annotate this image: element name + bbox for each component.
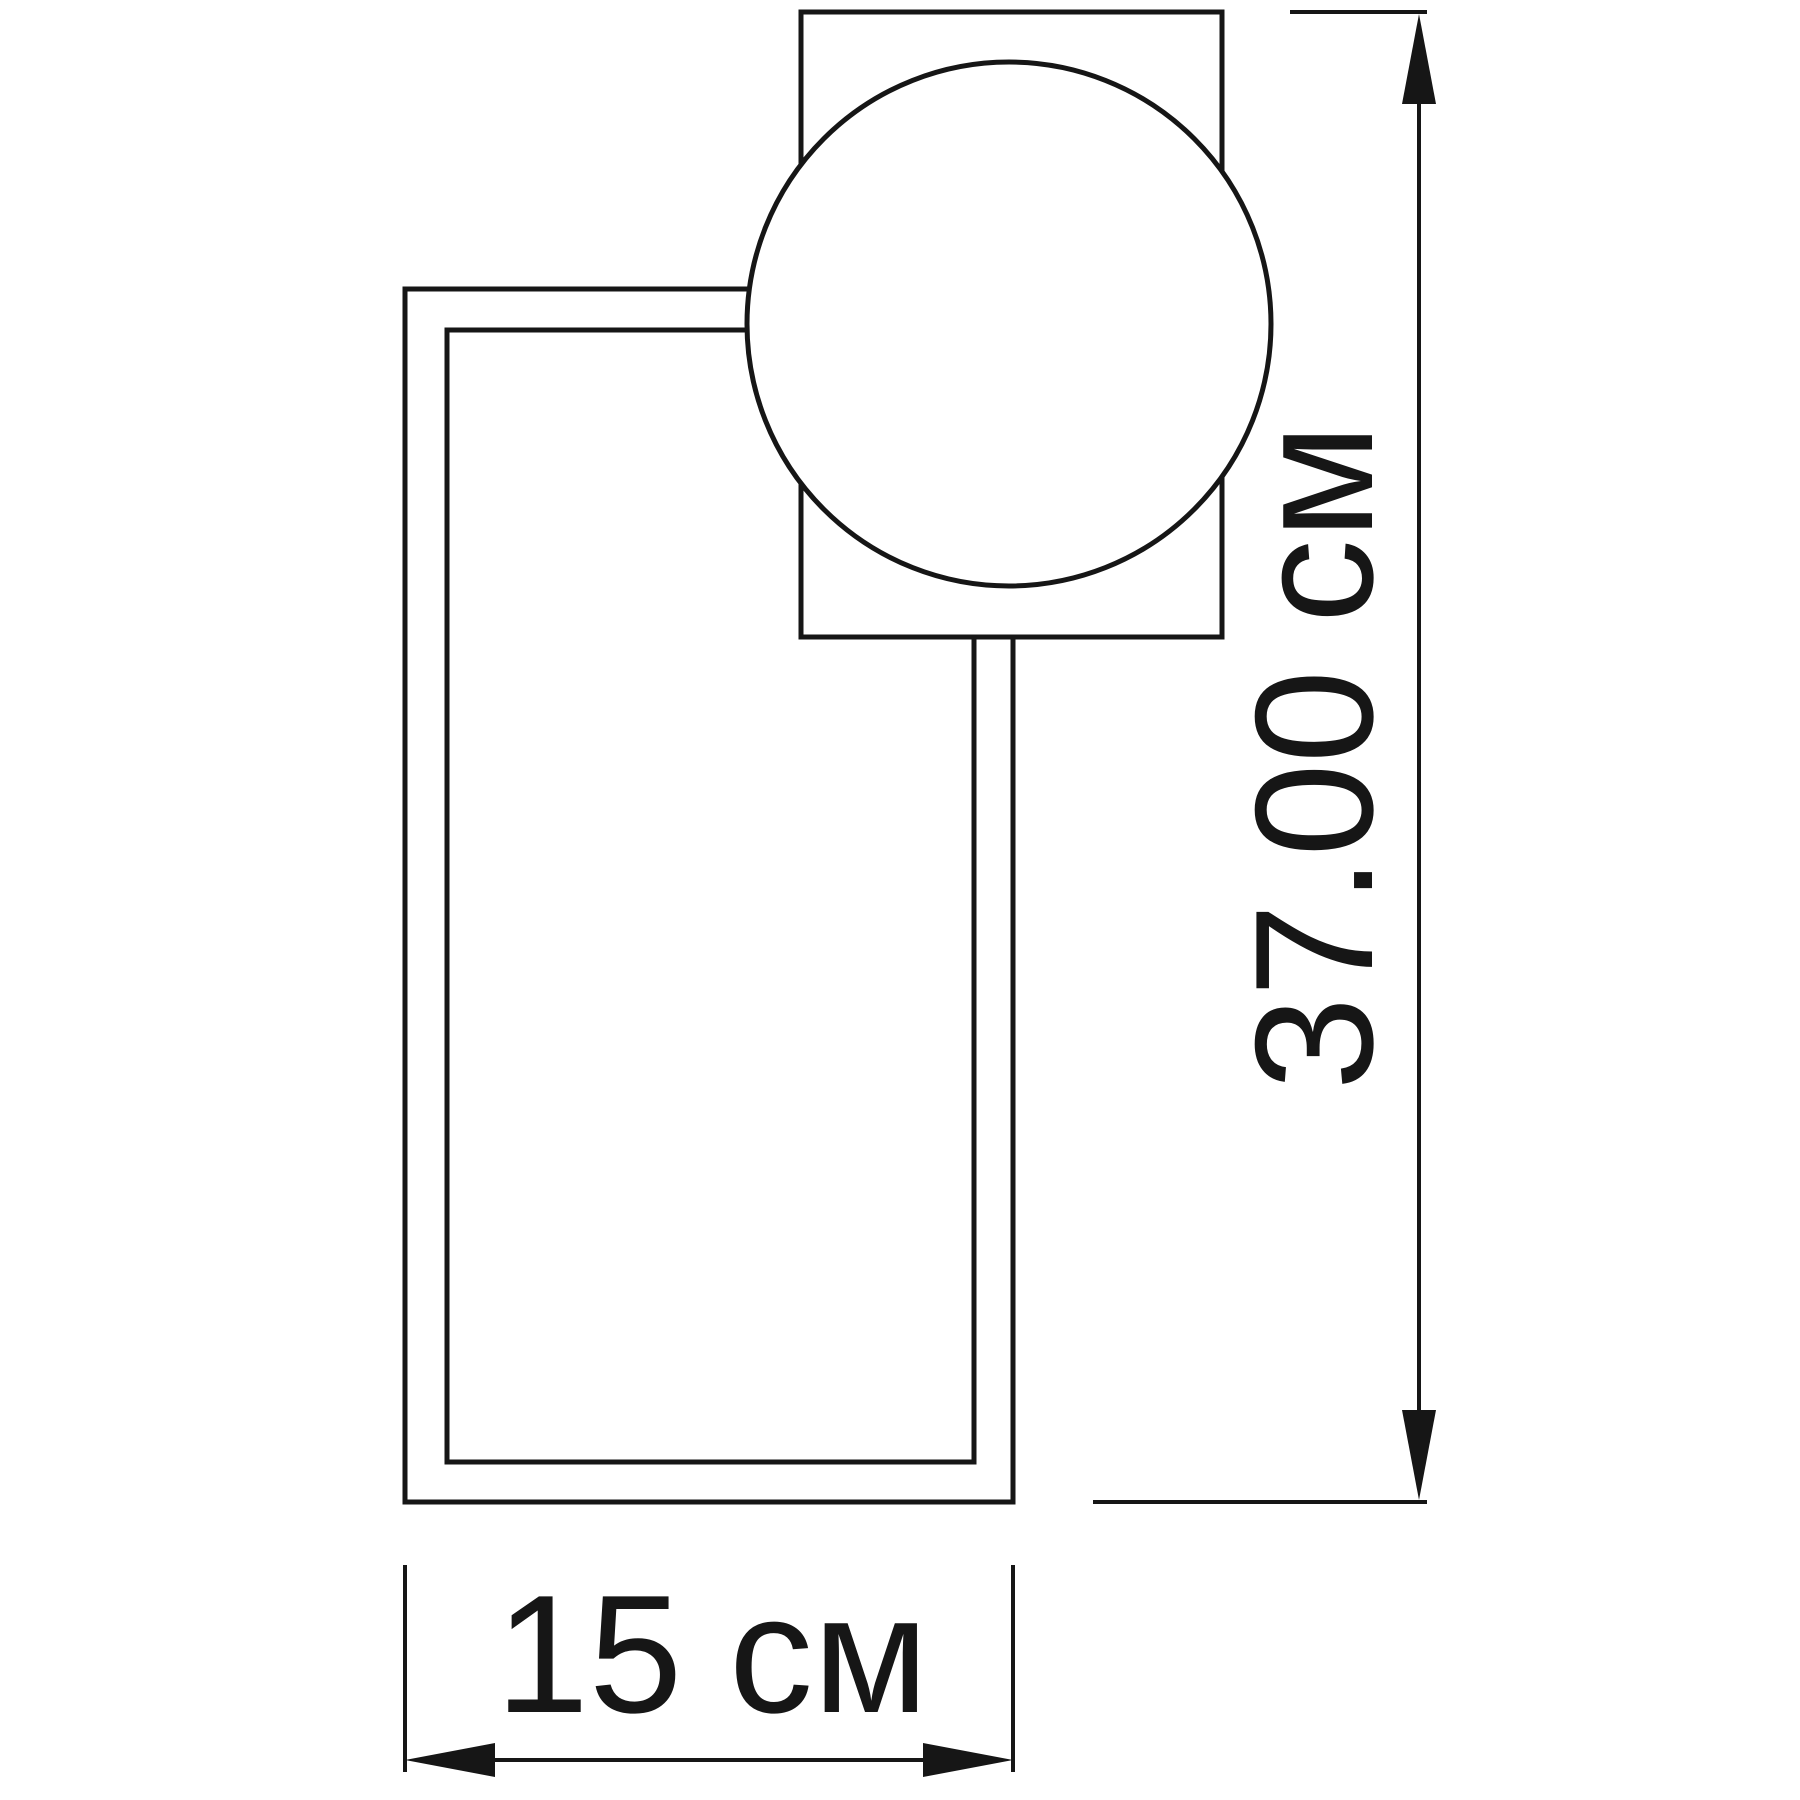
height-dimension-label: 37.00 см: [1220, 424, 1408, 1091]
height-arrow-down-icon: [1402, 1410, 1436, 1500]
width-dimension-label: 15 см: [495, 1560, 928, 1748]
lamp-dimension-drawing: 37.00 см 15 см: [0, 0, 1800, 1800]
lamp-globe: [747, 62, 1271, 586]
width-arrow-right-icon: [923, 1743, 1013, 1777]
height-arrow-up-icon: [1402, 14, 1436, 104]
wall-lamp-diagram: 37.00 см 15 см: [0, 0, 1800, 1800]
width-arrow-left-icon: [405, 1743, 495, 1777]
